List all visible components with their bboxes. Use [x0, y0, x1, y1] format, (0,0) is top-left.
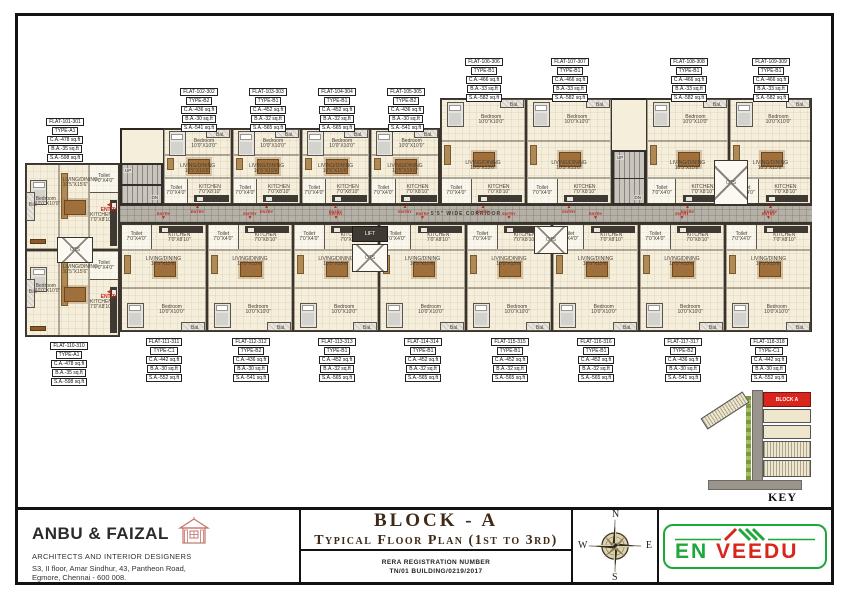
bedroom: Bal. Bedroom 10'0"X10'0" — [26, 251, 59, 336]
flat-label: TYPE-B1 — [758, 67, 785, 75]
flat-label: TYPE-B1 — [497, 347, 524, 355]
kitchen-zone: Toilet 7'0"X4'0" KITCHEN 7'0"X8'10" — [726, 224, 811, 250]
bedroom: Bal. Bedroom 10'0"X10'0" — [294, 288, 378, 331]
flat-label: B.A.-32 sq.ft — [320, 365, 354, 373]
living-room: LIVING/DINING 10'5"X15'6" — [467, 250, 551, 288]
dining-table — [64, 200, 86, 215]
entry-arrow: ▲ENTRY — [258, 205, 276, 214]
flat-label: TYPE-B1 — [676, 67, 703, 75]
balcony-label: Bal. — [533, 326, 548, 331]
flat-unit: Toilet 7'0"X4'0" KITCHEN 7'0"X8'10" LIVI… — [301, 128, 370, 205]
rera-label: RERA REGISTRATION NUMBER — [382, 559, 491, 566]
flat-label: FLAT-102-302 — [180, 88, 218, 96]
flat-label: S.A.-541 sq.ft — [388, 124, 424, 132]
entry-arrow: ▲ENTRY — [396, 205, 414, 214]
flat-label: C.A.-442 sq.ft — [146, 356, 183, 364]
flat-label: S.A.-582 sq.ft — [552, 94, 588, 102]
entry-arrow: ENTRY▼ — [587, 212, 605, 221]
drawing-title-cell: BLOCK - A Typical Floor Plan (1st to 3rd… — [301, 510, 573, 582]
flat-label: C.A.-466 sq.ft — [671, 76, 708, 84]
toilet-label: Toilet 7'0"X4'0" — [126, 232, 146, 242]
flat-label: C.A.-466 sq.ft — [753, 76, 790, 84]
flat-unit: Toilet 7'0"X4'0" KITCHEN 7'0"X8'10" LIVI… — [370, 128, 440, 205]
living-room: LIVING/DINING 10'5"X15'6" — [302, 155, 369, 178]
balcony-label: Bal. — [274, 326, 289, 331]
flat-label: FLAT-112-312 — [232, 338, 269, 346]
balcony-label: Bal. — [421, 133, 436, 138]
bed — [386, 303, 403, 328]
kitchen-zone: Toilet 7'0"X4'0" KITCHEN 7'0"X8'10" — [233, 178, 300, 204]
flat-label: S.A.-552 sq.ft — [146, 374, 182, 382]
house-icon — [177, 517, 211, 550]
wardrobe — [30, 326, 46, 331]
bedroom-label: Bedroom 10'0"X10'0" — [250, 139, 296, 149]
balcony: Bal. — [786, 322, 810, 331]
block-title: BLOCK - A — [374, 510, 498, 532]
flat-label: C.A.-478 sq.ft — [47, 136, 84, 144]
flat-label: B.A.-32 sq.ft — [251, 115, 285, 123]
flat-label: FLAT-101-301 — [46, 118, 84, 126]
bedroom-label: Bedroom 10'0"X10'0" — [668, 115, 723, 125]
logo-cell: EN VEEDU — [659, 510, 831, 582]
flat-label-stack: FLAT-113-313TYPE-B1C.A.-452 sq.ftB.A.-32… — [308, 338, 366, 382]
kitchen-label: KITCHEN 7'0"X8'10" — [672, 233, 723, 243]
flat-label: FLAT-103-303 — [249, 88, 287, 96]
architect-subtitle: ARCHITECTS AND INTERIOR DESIGNERS — [32, 552, 289, 561]
bed — [473, 303, 490, 328]
flat-label-stack: FLAT-105-305TYPE-B2C.A.-436 sq.ftB.A.-30… — [377, 88, 435, 132]
bedroom: Bal. Bedroom 10'0"X10'0" — [233, 129, 300, 155]
flat-label-stack: FLAT-103-303TYPE-B1C.A.-452 sq.ftB.A.-32… — [239, 88, 297, 132]
living-room: LIVING/DINING 10'5"X15'6" — [726, 250, 811, 288]
living-label: LIVING/DINING 10'5"X15'6" — [170, 164, 225, 174]
balcony: Bal. — [267, 322, 291, 331]
kitchen-label: KITCHEN 7'0"X8'10" — [328, 185, 368, 195]
bedroom: Bal. Bedroom 10'0"X10'0" — [26, 164, 59, 249]
entry-arrow: ENTRY▼ — [414, 212, 432, 221]
bedroom-label: Bedroom 10'0"X10'0" — [316, 305, 373, 315]
toilet-room: Toilet 7'0"X4'0" — [468, 225, 498, 249]
logo-word-veedu: VEEDU — [716, 540, 798, 563]
toilet-label: Toilet 7'0"X4'0" — [373, 186, 393, 196]
flat-label: S.A.-582 sq.ft — [466, 94, 502, 102]
kitchen-zone: Toilet 7'0"X4'0" KITCHEN 7'0"X8'10" — [121, 224, 206, 250]
flat-unit: Toilet 7'0"X4'0" KITCHEN 7'0"X8'10" LIVI… — [639, 223, 725, 332]
ots-shaft: OTS — [534, 226, 568, 254]
bedroom-label: Bedroom 10'0"X10'0" — [402, 305, 460, 315]
flat-label: B.A.-35 sq.ft — [48, 145, 82, 153]
balcony: Bal. — [26, 279, 35, 309]
flat-label: FLAT-113-313 — [318, 338, 355, 346]
kitchen-label: KITCHEN 7'0"X8'10" — [259, 185, 299, 195]
drawing-title: Typical Floor Plan (1st to 3rd) — [314, 533, 558, 549]
flat-label: C.A.-452 sq.ft — [578, 356, 615, 364]
bed — [646, 303, 663, 328]
entry-arrow: ◀ ENTRY — [100, 203, 118, 213]
bedroom: Bal. Bedroom 10'0"X10'0" — [371, 129, 439, 155]
flat-label: B.A.-35 sq.ft — [52, 369, 86, 377]
bedroom-label: Bedroom 10'0"X10'0" — [748, 305, 806, 315]
bedroom-label: Bedroom 10'0"X10'0" — [181, 139, 227, 149]
entry-arrow: ▲ENTRY — [474, 205, 492, 214]
bedroom: Bal. Bedroom 10'0"X10'0" — [527, 99, 611, 141]
living-room: LIVING/DINING 10'5"X15'6" — [640, 250, 724, 288]
flat-label: FLAT-118-318 — [750, 338, 787, 346]
compass-south-label: S — [612, 572, 618, 583]
flat-label: FLAT-115-315 — [491, 338, 528, 346]
flat-label-stack: FLAT-106-306TYPE-B1C.A.-466 sq.ftB.A.-33… — [455, 58, 513, 102]
flat-label: TYPE-C1 — [755, 347, 782, 355]
bedroom-label: Bedroom 10'0"X10'0" — [549, 115, 606, 125]
toilet-label: Toilet 7'0"X4'0" — [731, 232, 751, 242]
architect-address-line2: Egmore, Chennai - 600 008. — [32, 573, 289, 582]
flat-label: TYPE-B2 — [393, 97, 420, 105]
toilet-room: Toilet 7'0"X4'0" — [209, 225, 239, 249]
compass-north-label: N — [612, 509, 619, 520]
toilet-room: Toilet 7'0"X4'0" — [648, 179, 676, 203]
kitchen-counter — [263, 195, 298, 202]
toilet-label: Toilet 7'0"X4'0" — [213, 232, 233, 242]
flat-label: C.A.-436 sq.ft — [181, 106, 218, 114]
bedroom: Bal. Bedroom 10'0"X10'0" — [640, 288, 724, 331]
flat-label: B.A.-32 sq.ft — [579, 365, 613, 373]
flat-label: C.A.-452 sq.ft — [492, 356, 529, 364]
flat-label: C.A.-478 sq.ft — [51, 360, 88, 368]
stair-down-label: DN — [151, 195, 160, 200]
living-room: LIVING/DINING 10'5"X15'6" — [164, 155, 231, 178]
kitchen-zone: Toilet 7'0"X4'0" KITCHEN 7'0"X8'10" — [380, 224, 465, 250]
flat-label: C.A.-452 sq.ft — [250, 106, 287, 114]
key-plan: BLOCK A KEY PLAN — [700, 388, 834, 506]
balcony-label: Bal. — [282, 133, 297, 138]
toilet-label: Toilet 7'0"X4'0" — [645, 232, 665, 242]
balcony-label: Bal. — [29, 203, 34, 208]
flat-unit: Toilet 7'0"X4'0" KITCHEN 7'0"X8'10" LIVI… — [120, 223, 207, 332]
entry-arrow: ENTRY▼ — [760, 212, 778, 221]
balcony: Bal. — [440, 322, 464, 331]
bedroom: Bal. Bedroom 10'0"X10'0" — [380, 288, 465, 331]
flat-label: B.A.-30 sq.ft — [666, 365, 700, 373]
flat-label: FLAT-109-309 — [752, 58, 790, 66]
toilet-label: Toilet 7'0"X4'0" — [304, 186, 324, 196]
flat-label: B.A.-32 sq.ft — [493, 365, 527, 373]
flat-label: TYPE-C1 — [150, 347, 177, 355]
architect-name: ANBU & FAIZAL — [32, 524, 169, 544]
flat-label-stack: FLAT-115-315TYPE-B1C.A.-452 sq.ftB.A.-32… — [481, 338, 539, 382]
bed — [559, 303, 576, 328]
flat-label: S.A.-598 sq.ft — [51, 378, 87, 386]
flat-label: TYPE-B1 — [557, 67, 584, 75]
flat-label: B.A.-33 sq.ft — [754, 85, 788, 93]
flat-unit: Toilet 7'0"X4'0" KITCHEN 7'0"X8'10" LIVI… — [232, 128, 301, 205]
bed — [300, 303, 317, 328]
kitchen-label: KITCHEN 7'0"X8'10" — [154, 233, 205, 243]
kitchen-label: KITCHEN 7'0"X8'10" — [559, 185, 610, 195]
compass-rose-icon: N S W E — [580, 511, 650, 581]
flat-label: C.A.-436 sq.ft — [388, 106, 425, 114]
flat-label: B.A.-30 sq.ft — [147, 365, 181, 373]
balcony-label: Bal. — [507, 103, 522, 108]
bedroom: Bal. Bedroom 10'0"X10'0" — [553, 288, 638, 331]
toilet-label: Toilet 7'0"X4'0" — [385, 232, 405, 242]
flat-label: TYPE-B1 — [324, 347, 351, 355]
keyplan-side-block — [700, 391, 749, 429]
flat-unit: Toilet 7'0"X4'0" KITCHEN 7'0"X8'10" LIVI… — [163, 128, 232, 205]
living-label: LIVING/DINING 10'5"X15'6" — [308, 164, 363, 174]
compass-east-label: E — [646, 540, 652, 551]
flat-label-stack: FLAT-107-307TYPE-B1C.A.-466 sq.ftB.A.-33… — [541, 58, 599, 102]
staircase-left: UP DN — [120, 163, 163, 205]
flat-label: S.A.-541 sq.ft — [233, 374, 269, 382]
flat-label: B.A.-33 sq.ft — [553, 85, 587, 93]
living-label: LIVING/DINING 10'5"X15'6" — [654, 161, 720, 171]
flat-label: C.A.-466 sq.ft — [552, 76, 589, 84]
balcony-label: Bal. — [351, 133, 366, 138]
flat-label: S.A.-565 sq.ft — [492, 374, 528, 382]
keyplan-block — [763, 409, 811, 423]
bedroom: Bal. Bedroom 10'0"X10'0" — [467, 288, 551, 331]
balcony: Bal. — [181, 322, 205, 331]
flat-label: C.A.-436 sq.ft — [233, 356, 270, 364]
lift: LIFT — [352, 226, 388, 242]
flat-label: S.A.-565 sq.ft — [578, 374, 614, 382]
bedroom: Bal. Bedroom 10'0"X10'0" — [208, 288, 292, 331]
kitchen-label: KITCHEN 7'0"X8'10" — [761, 185, 810, 195]
living-room: LIVING/DINING 10'5"X15'6" — [527, 141, 611, 178]
toilet-room: Toilet 7'0"X4'0" — [641, 225, 671, 249]
bedroom-label: Bedroom 10'0"X10'0" — [143, 305, 201, 315]
flat-label-stack: FLAT-118-318TYPE-C1C.A.-442 sq.ftB.A.-30… — [740, 338, 798, 382]
flat-label: TYPE-A1 — [56, 351, 83, 359]
flat-label: FLAT-106-306 — [465, 58, 503, 66]
kitchen-zone: Toilet 7'0"X4'0" KITCHEN 7'0"X8'10" — [527, 178, 611, 204]
keyplan-road — [708, 480, 802, 490]
flat-label: B.A.-32 sq.ft — [320, 115, 354, 123]
kitchen-counter — [194, 195, 229, 202]
kitchen-counter — [766, 195, 809, 202]
flat-label: B.A.-30 sq.ft — [752, 365, 786, 373]
living-label: LIVING/DINING 10'5"X15'6" — [377, 164, 432, 174]
stair-up-label: UP — [616, 155, 624, 160]
flat-label: S.A.-552 sq.ft — [751, 374, 787, 382]
flat-label: FLAT-111-311 — [146, 338, 182, 346]
kitchen-counter — [564, 195, 608, 202]
kitchen-label: KITCHEN 7'0"X8'10" — [397, 185, 438, 195]
flat-label: TYPE-B1 — [255, 97, 282, 105]
bedroom-label: Bedroom 10'0"X10'0" — [489, 305, 546, 315]
balcony-label: Bal. — [360, 326, 375, 331]
toilet-label: Toilet 7'0"X4'0" — [235, 186, 255, 196]
corridor: 5'5" WIDE CORRIDOR — [120, 205, 812, 223]
toilet-label: Toilet 7'0"X4'0" — [652, 186, 672, 196]
living-room: LIVING/DINING 10'5"X15'6" — [441, 141, 525, 178]
flat-label: C.A.-452 sq.ft — [319, 106, 356, 114]
flat-label: S.A.-565 sq.ft — [405, 374, 441, 382]
toilet-room: Toilet 7'0"X4'0" — [442, 179, 472, 203]
keyplan-block — [763, 460, 811, 477]
kitchen-counter — [478, 195, 522, 202]
balcony-label: Bal. — [29, 290, 34, 295]
logo-word-en: EN — [675, 540, 708, 563]
toilet-label: Toilet 7'0"X4'0" — [446, 186, 466, 196]
entry-arrow: ENTRY▼ — [500, 212, 518, 221]
bed — [127, 303, 144, 328]
compass-cell: N S W E — [573, 510, 659, 582]
bedroom: Bal. Bedroom 10'0"X10'0" — [647, 99, 728, 141]
entry-arrow: ▲ENTRY — [189, 205, 207, 214]
keyplan-block — [763, 425, 811, 439]
toilet-room: Toilet 7'0"X4'0" — [303, 179, 326, 203]
balcony-label: Bal. — [188, 326, 203, 331]
flat-label-stack: FLAT-108-308TYPE-B1C.A.-466 sq.ftB.A.-33… — [660, 58, 718, 102]
balcony: Bal. — [353, 322, 377, 331]
balcony-label: Bal. — [447, 326, 462, 331]
toilet-room: Toilet 7'0"X4'0" — [528, 179, 558, 203]
flat-label: TYPE-B2 — [186, 97, 213, 105]
flat-label: C.A.-452 sq.ft — [405, 356, 442, 364]
balcony: Bal. — [26, 192, 35, 222]
keyplan-landscape — [746, 396, 751, 480]
balcony-label: Bal. — [706, 326, 721, 331]
bedroom: Bal. Bedroom 10'0"X10'0" — [730, 99, 811, 141]
kitchen-label: KITCHEN 7'0"X8'10" — [190, 185, 230, 195]
kitchen-label: KITCHEN 7'0"X8'10" — [473, 185, 524, 195]
flat-label: TYPE-B1 — [410, 347, 437, 355]
toilet-room: Toilet 7'0"X4'0" — [727, 225, 757, 249]
bed — [533, 102, 550, 127]
keyplan-block — [763, 441, 811, 458]
flat-label-stack: FLAT-114-314TYPE-B1C.A.-452 sq.ftB.A.-32… — [394, 338, 452, 382]
flat-label: FLAT-114-314 — [404, 338, 441, 346]
balcony: Bal. — [699, 322, 723, 331]
flat-label: S.A.-541 sq.ft — [181, 124, 217, 132]
flat-label: S.A.-598 sq.ft — [47, 154, 83, 162]
living-room: LIVING/DINING 10'5"X15'6" — [371, 155, 439, 178]
flat-label: S.A.-565 sq.ft — [319, 124, 355, 132]
compass-west-label: W — [578, 540, 587, 551]
flat-label-stack: FLAT-111-311TYPE-C1C.A.-442 sq.ftB.A.-30… — [135, 338, 193, 382]
kitchen-counter — [401, 195, 437, 202]
flat-label: FLAT-110-310 — [50, 342, 87, 350]
bedroom-label: Bedroom 10'0"X10'0" — [463, 115, 520, 125]
flat-label: C.A.-466 sq.ft — [466, 76, 503, 84]
kitchen-label: KITCHEN 7'0"X8'10" — [240, 233, 291, 243]
entry-arrow: ENTRY▼ — [155, 212, 173, 221]
stair-up-label: UP — [124, 168, 132, 173]
toilet-label: Toilet 7'0"X4'0" — [472, 232, 492, 242]
flat-label: B.A.-30 sq.ft — [389, 115, 423, 123]
living-label: LIVING/DINING 10'5"X15'6" — [648, 257, 717, 267]
flat-label-stack: FLAT-104-304TYPE-B1C.A.-452 sq.ftB.A.-32… — [308, 88, 366, 132]
kitchen-label: KITCHEN 7'0"X8'10" — [586, 233, 637, 243]
flat-label: S.A.-541 sq.ft — [665, 374, 701, 382]
bedroom: Bal. Bedroom 10'0"X10'0" — [302, 129, 369, 155]
architect-address-line1: S3, II floor, Amar Sindhur, 43, Pantheon… — [32, 564, 289, 573]
flat-label: TYPE-B1 — [583, 347, 610, 355]
balcony-label: Bal. — [710, 103, 725, 108]
flat-label: FLAT-104-304 — [318, 88, 356, 96]
flat-label: C.A.-436 sq.ft — [665, 356, 702, 364]
living-label: LIVING/DINING 10'5"X15'6" — [63, 265, 86, 275]
flat-label: S.A.-565 sq.ft — [319, 374, 355, 382]
ots-shaft: OTS — [714, 160, 748, 205]
balcony-label: Bal. — [793, 326, 808, 331]
living-label: LIVING/DINING 10'5"X15'6" — [216, 257, 285, 267]
balcony-label: Bal. — [793, 103, 808, 108]
flat-label-stack: FLAT-112-312TYPE-B2C.A.-436 sq.ftB.A.-30… — [222, 338, 280, 382]
toilet-room: Toilet 7'0"X4'0" — [165, 179, 188, 203]
kitchen-zone: Toilet 7'0"X4'0" KITCHEN 7'0"X8'10" — [371, 178, 439, 204]
living-room: LIVING/DINING 10'5"X15'6" — [380, 250, 465, 288]
bedroom-label: Bedroom 10'0"X10'0" — [230, 305, 287, 315]
living-label: LIVING/DINING 10'5"X15'6" — [561, 257, 631, 267]
kitchen-zone: Toilet 7'0"X4'0" KITCHEN 7'0"X8'10" — [302, 178, 369, 204]
ots-shaft: OTS — [352, 244, 388, 272]
flat-unit: Toilet 7'0"X4'0" KITCHEN 7'0"X8'10" LIVI… — [440, 98, 526, 205]
flat-unit: Toilet 7'0"X4'0" KITCHEN 7'0"X8'10" LIVI… — [725, 223, 812, 332]
kitchen-label: KITCHEN 7'0"X8'10" — [759, 233, 810, 243]
stair-down-label: DN — [634, 195, 643, 200]
flat-label: C.A.-452 sq.ft — [319, 356, 356, 364]
entry-arrow: ◀ ENTRY — [100, 290, 118, 300]
toilet-label: Toilet 7'0"X4'0" — [532, 186, 552, 196]
keyplan-road — [752, 390, 763, 490]
bedroom: Bal. Bedroom 10'0"X10'0" — [164, 129, 231, 155]
toilet-label: Toilet 7'0"X4'0" — [166, 186, 186, 196]
balcony: Bal. — [613, 322, 637, 331]
bedroom: Bal. Bedroom 10'0"X10'0" — [121, 288, 206, 331]
entry-arrow: ENTRY▼ — [327, 212, 345, 221]
flat-label-stack: FLAT-109-309TYPE-B1C.A.-466 sq.ftB.A.-33… — [742, 58, 800, 102]
bedroom-label: Bedroom 10'0"X10'0" — [662, 305, 719, 315]
kitchen-zone: Toilet 7'0"X4'0" KITCHEN 7'0"X8'10" — [640, 224, 724, 250]
bed — [447, 102, 464, 127]
bedroom-label: Bedroom 10'0"X10'0" — [751, 115, 806, 125]
bedroom-label: Bedroom 10'0"X10'0" — [389, 139, 435, 149]
flat-label: S.A.-582 sq.ft — [753, 94, 789, 102]
flat-label: B.A.-33 sq.ft — [672, 85, 706, 93]
kitchen-label: KITCHEN 7'0"X8'10" — [90, 300, 110, 310]
bedroom: Bal. Bedroom 10'0"X10'0" — [441, 99, 525, 141]
architect-cell: ANBU & FAIZAL ARCHITECTS AND INTERIOR DE… — [18, 510, 301, 582]
living-label: LIVING/DINING 10'5"X15'6" — [388, 257, 458, 267]
bed — [214, 303, 231, 328]
flat-unit: Toilet 7'0"X4'0" KITCHEN 7'0"X8'10" LIVI… — [526, 98, 612, 205]
flat-label: TYPE-B1 — [324, 97, 351, 105]
flat-label: FLAT-105-305 — [387, 88, 425, 96]
flat-label: S.A.-582 sq.ft — [671, 94, 707, 102]
bedroom-label: Bedroom 10'0"X10'0" — [319, 139, 365, 149]
rera-number: TN/01 BUILDING/0219/2017 — [389, 568, 482, 575]
living-label: LIVING/DINING 10'5"X15'6" — [475, 257, 544, 267]
kitchen-label: KITCHEN 7'0"X8'10" — [90, 213, 110, 223]
flat-label: FLAT-116-316 — [577, 338, 614, 346]
entry-arrow: ▲ENTRY — [560, 205, 578, 214]
living-room: LIVING/DINING 10'5"X15'6" — [121, 250, 206, 288]
entry-arrow: ENTRY▼ — [673, 212, 691, 221]
flat-label: B.A.-30 sq.ft — [182, 115, 216, 123]
living-label: LIVING/DINING 10'5"X15'6" — [449, 161, 518, 171]
living-room: LIVING/DINING 10'5"X15'6" — [233, 155, 300, 178]
entry-arrow: ENTRY▼ — [241, 212, 259, 221]
ots-shaft: OTS — [57, 237, 93, 263]
toilet-label: Toilet 7'0"X4'0" — [299, 232, 319, 242]
flat-label: TYPE-B2 — [670, 347, 697, 355]
kitchen-zone: Toilet 7'0"X4'0" KITCHEN 7'0"X8'10" — [164, 178, 231, 204]
living-label: LIVING/DINING 10'5"X15'6" — [734, 257, 804, 267]
living-label: LIVING/DINING 10'5"X15'6" — [239, 164, 294, 174]
flat-label: S.A.-565 sq.ft — [250, 124, 286, 132]
